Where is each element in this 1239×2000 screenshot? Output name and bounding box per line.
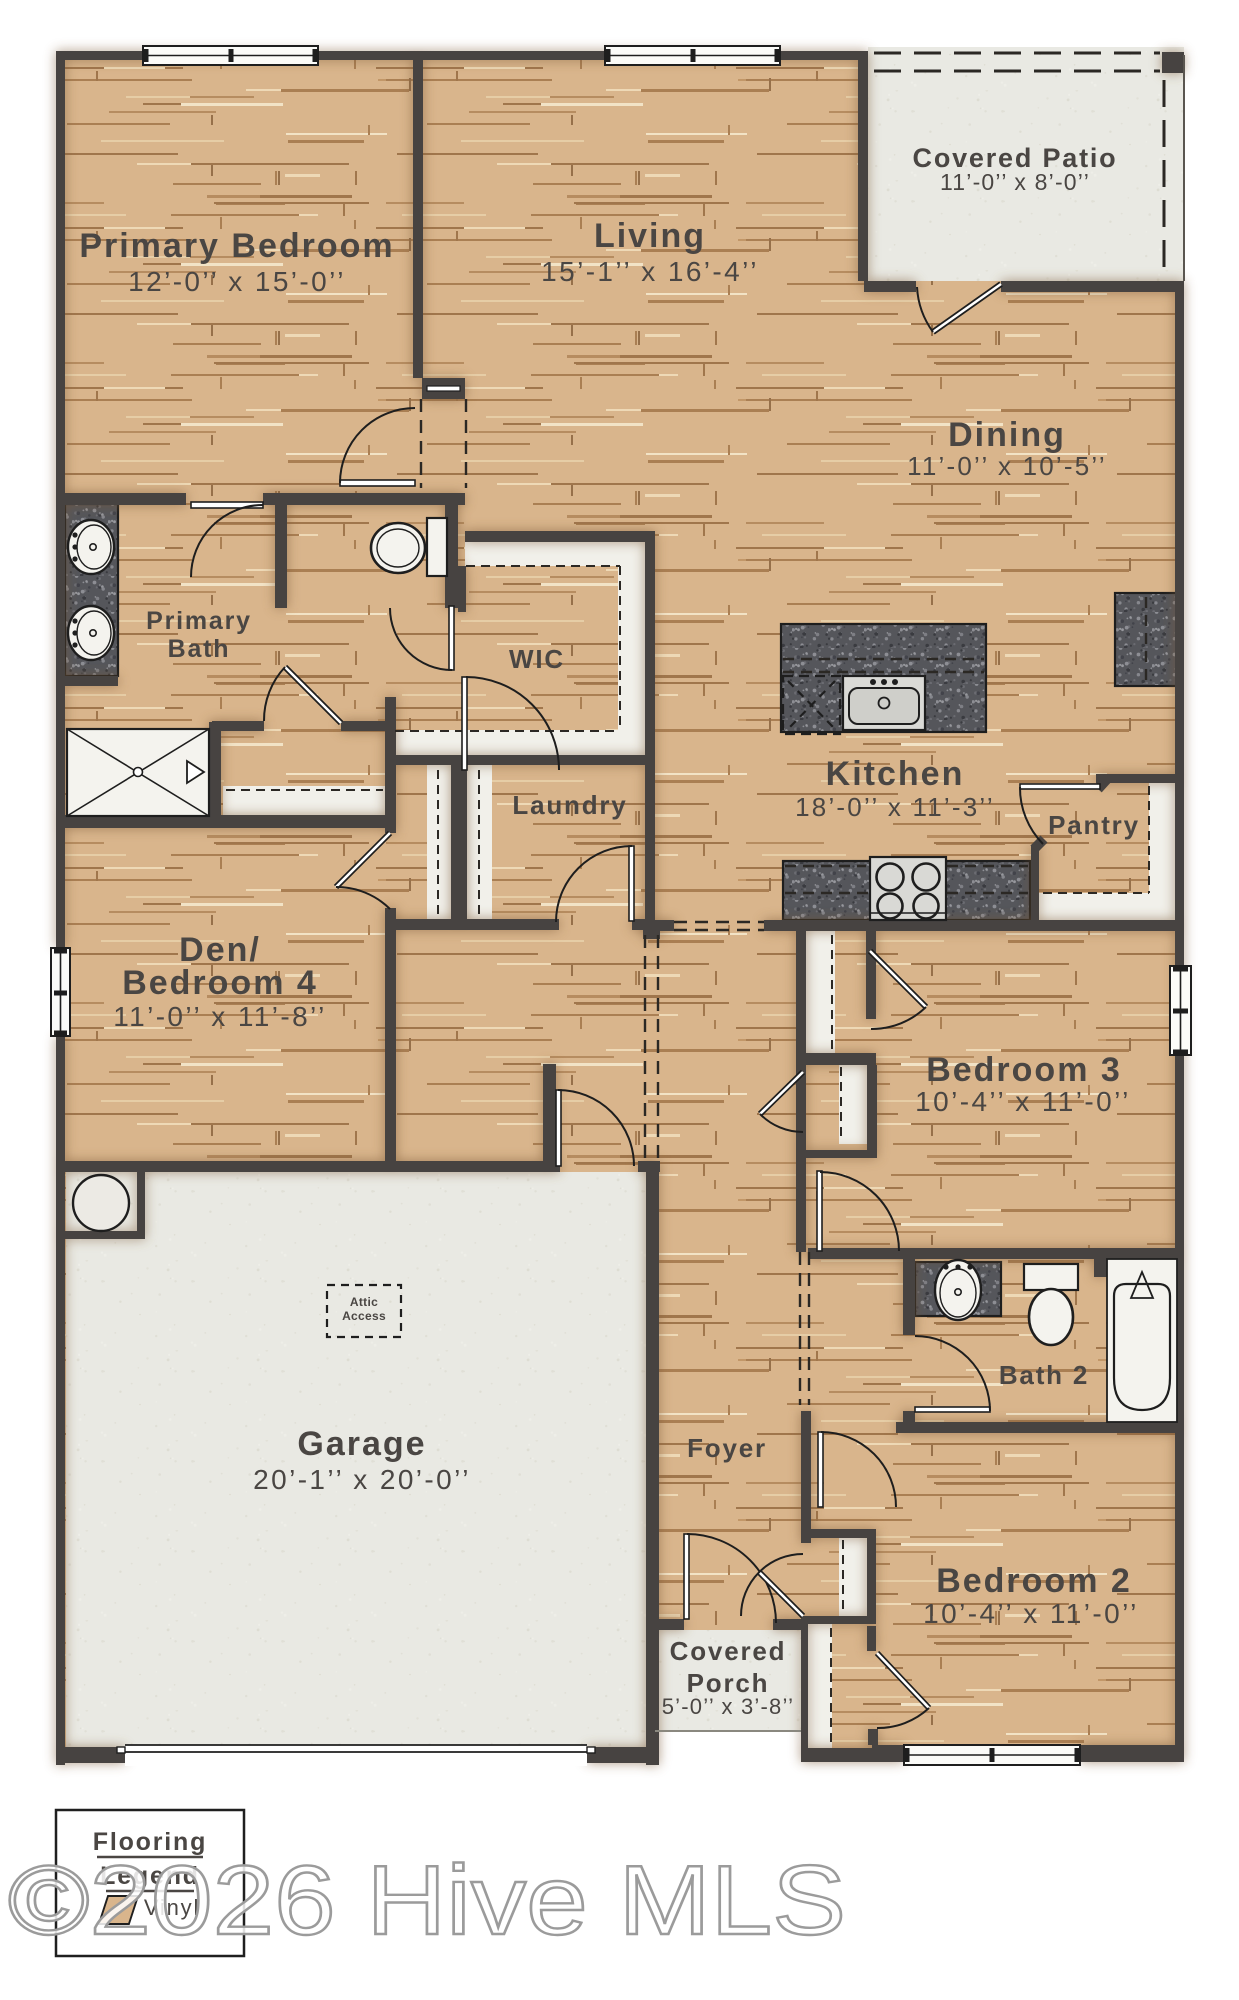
svg-text:WIC: WIC [509,644,565,674]
svg-text:20’-1’’ x 20’-0’’: 20’-1’’ x 20’-0’’ [253,1464,471,1495]
svg-text:Primary: Primary [146,607,252,635]
svg-text:5’-0’’ x 3’-8’’: 5’-0’’ x 3’-8’’ [662,1694,795,1719]
svg-text:Covered: Covered [670,1636,787,1666]
svg-text:11’-0’’ x 11’-8’’: 11’-0’’ x 11’-8’’ [113,1001,327,1032]
svg-text:10’-4’’ x 11’-0’’: 10’-4’’ x 11’-0’’ [923,1598,1139,1629]
svg-text:Garage: Garage [297,1425,426,1463]
svg-text:11’-0’’ x 10’-5’’: 11’-0’’ x 10’-5’’ [907,451,1107,481]
svg-text:Living: Living [594,217,706,255]
svg-text:12’-0’’ x 15’-0’’: 12’-0’’ x 15’-0’’ [128,266,346,297]
svg-text:Bath: Bath [168,635,231,663]
svg-text:10’-4’’ x 11’-0’’: 10’-4’’ x 11’-0’’ [915,1086,1131,1117]
svg-text:Attic: Attic [350,1295,378,1309]
svg-text:©2026 Hive MLS: ©2026 Hive MLS [8,1845,846,1955]
svg-text:Bedroom 2: Bedroom 2 [936,1562,1132,1600]
svg-text:Bedroom 4: Bedroom 4 [122,964,318,1002]
svg-text:11’-0’’ x 8’-0’’: 11’-0’’ x 8’-0’’ [940,169,1090,195]
svg-text:15’-1’’ x 16’-4’’: 15’-1’’ x 16’-4’’ [541,256,759,287]
svg-text:18’-0’’ x 11’-3’’: 18’-0’’ x 11’-3’’ [795,792,995,822]
svg-text:Bath 2: Bath 2 [999,1360,1089,1390]
svg-text:Primary Bedroom: Primary Bedroom [79,227,394,265]
svg-text:Laundry: Laundry [512,790,627,820]
svg-text:Kitchen: Kitchen [826,755,965,793]
svg-text:Foyer: Foyer [687,1433,767,1463]
svg-text:Bedroom 3: Bedroom 3 [926,1051,1122,1089]
svg-text:Access: Access [342,1309,386,1323]
svg-text:Pantry: Pantry [1048,810,1140,840]
svg-text:Dining: Dining [948,416,1066,454]
